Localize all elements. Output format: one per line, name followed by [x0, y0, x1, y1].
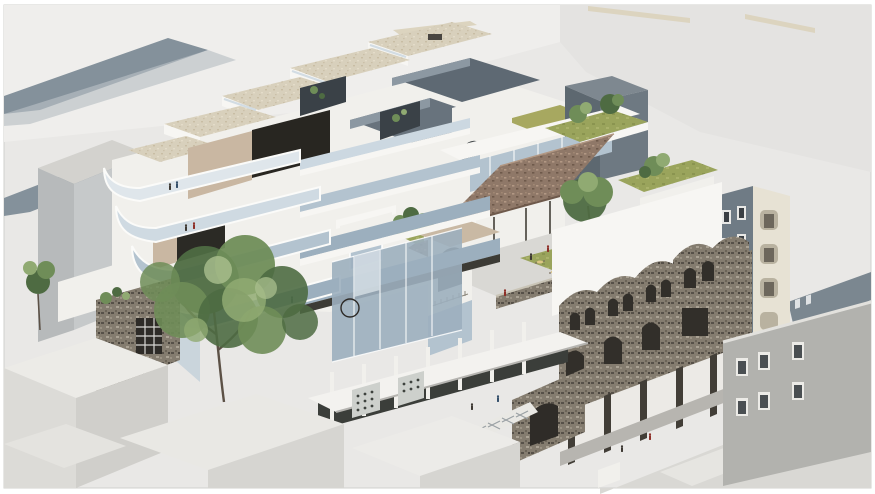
- planter-shrub: [310, 86, 318, 94]
- skylight: [428, 34, 442, 40]
- render-canvas: [0, 0, 875, 494]
- architectural-render: [0, 0, 875, 494]
